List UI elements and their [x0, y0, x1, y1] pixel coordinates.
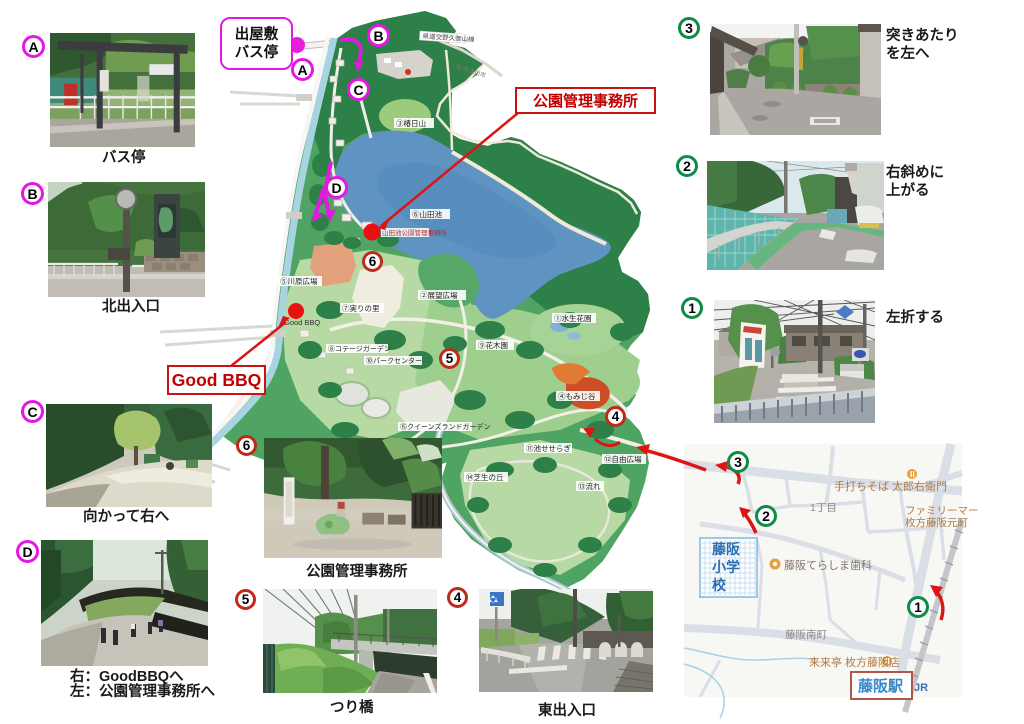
svg-text:⑦実りの里: ⑦実りの里 [342, 303, 380, 313]
svg-text:校: 校 [712, 577, 727, 593]
svg-text:⑫自由広場: ⑫自由広場 [604, 454, 642, 464]
svg-text:⑥山田池: ⑥山田池 [412, 209, 442, 219]
svg-text:③椿日山: ③椿日山 [396, 118, 426, 128]
svg-text:藤阪南町: 藤阪南町 [785, 628, 827, 641]
svg-text:藤阪駅: 藤阪駅 [858, 677, 904, 695]
svg-text:Good BBQ: Good BBQ [284, 318, 320, 327]
svg-text:⑪池せせらぎ: ⑪池せせらぎ [526, 443, 571, 453]
svg-text:枚方藤阪元町: 枚方藤阪元町 [905, 516, 968, 529]
svg-text:ファミリーマー: ファミリーマー [905, 505, 979, 517]
svg-text:藤阪てらしま歯科: 藤阪てらしま歯科 [784, 558, 872, 572]
svg-text:来来亭 枚方藤阪店: 来来亭 枚方藤阪店 [809, 655, 900, 669]
svg-text:⑮クイーンズランドガーデン: ⑮クイーンズランドガーデン [400, 422, 491, 431]
svg-text:⑩パークセンター: ⑩パークセンター [366, 356, 422, 365]
svg-text:⑧コテージガーデン: ⑧コテージガーデン [328, 344, 391, 353]
svg-text:小学: 小学 [712, 559, 740, 575]
svg-text:⑬流れ: ⑬流れ [578, 481, 601, 491]
svg-text:②展望広場: ②展望広場 [420, 290, 458, 300]
svg-text:⑭芝生の丘: ⑭芝生の丘 [466, 472, 504, 482]
svg-text:山田池公園管理事務所: 山田池公園管理事務所 [382, 228, 448, 237]
svg-text:④もみじ谷: ④もみじ谷 [558, 392, 596, 401]
svg-text:⑤川原広場: ⑤川原広場 [280, 276, 318, 286]
svg-text:手打ちそば 太郎右衛門: 手打ちそば 太郎右衛門 [834, 479, 947, 493]
svg-text:①水生花園: ①水生花園 [554, 313, 592, 323]
svg-text:藤阪: 藤阪 [712, 541, 741, 557]
svg-text:⑨花木園: ⑨花木園 [478, 340, 508, 350]
svg-text:JR: JR [914, 682, 928, 694]
svg-text:1丁目: 1丁目 [810, 502, 837, 514]
